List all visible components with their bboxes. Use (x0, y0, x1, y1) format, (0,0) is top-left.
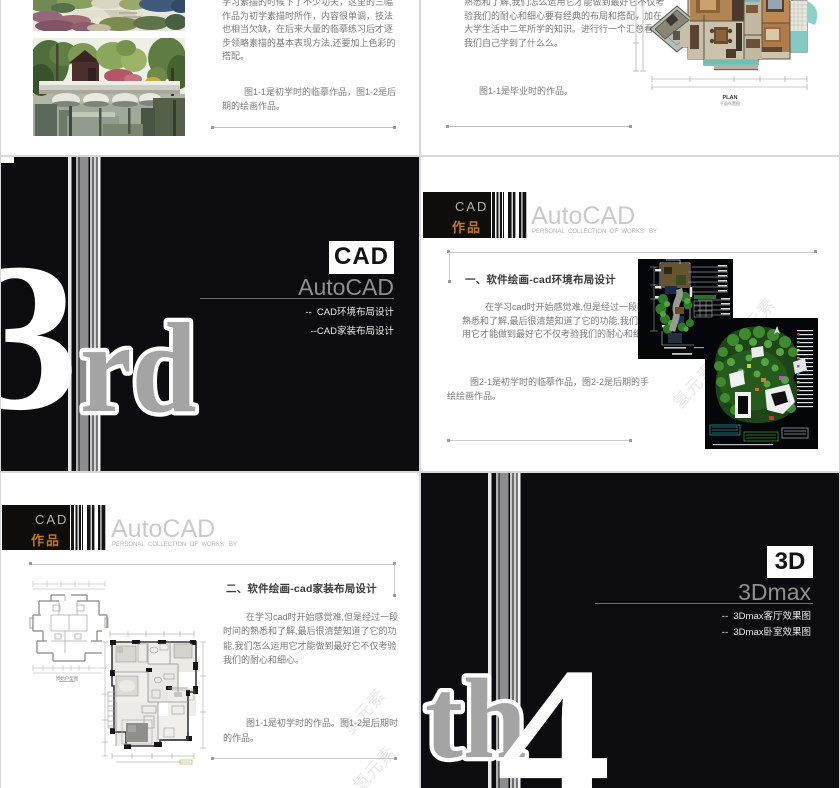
svg-text:3: 3 (1, 219, 79, 454)
svg-text:原始户型图: 原始户型图 (56, 675, 79, 682)
svg-text:rd: rd (80, 298, 196, 439)
svg-text:4: 4 (496, 626, 611, 788)
svg-text:平面布置图: 平面布置图 (720, 100, 740, 106)
